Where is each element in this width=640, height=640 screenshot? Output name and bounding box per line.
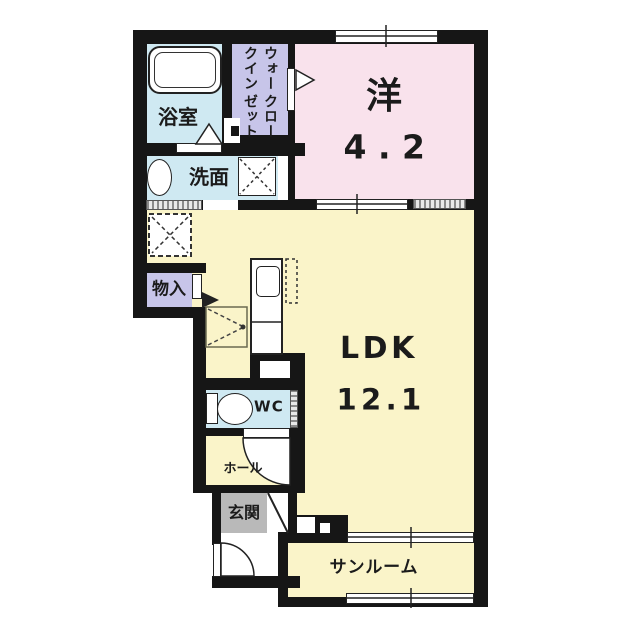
door-leaf-closet <box>287 68 295 111</box>
door-leaf-storage <box>192 274 202 299</box>
room-western <box>295 44 474 200</box>
walk-in-closet-label-line1: ウォークイン <box>240 46 280 94</box>
wall-left-column <box>193 307 206 493</box>
walk-in-closet-label-line2: クローゼット <box>240 94 280 142</box>
western-room-label: 洋 <box>366 79 402 115</box>
door-leaf-hall <box>243 428 290 438</box>
western-room-size: 4.2 <box>343 131 436 164</box>
hatch-washroom-door <box>146 200 202 210</box>
washing-machine-space <box>238 157 276 196</box>
bathtub <box>148 46 222 94</box>
washroom-sink <box>147 159 172 196</box>
hatch-western-bottom <box>413 199 466 209</box>
wc-sliding-door <box>290 390 298 428</box>
opening-washroom-entry <box>203 200 238 210</box>
floor-plan: 浴室 ウォークイン クローゼット 洋 4.2 洗面 物入 LDK 12.1 WC… <box>0 0 640 640</box>
entrance-step-line <box>268 493 288 533</box>
window-sunroom-bottom <box>346 593 474 604</box>
opening-step-niche-2 <box>320 523 330 533</box>
walk-in-closet-label: ウォークイン クローゼット <box>233 46 287 142</box>
hall-label: ホール <box>223 463 262 476</box>
wall-closet-western <box>288 30 295 210</box>
toilet-bowl <box>217 393 253 425</box>
wc-label: WC <box>254 400 284 415</box>
bathtub-inner-line <box>154 52 216 88</box>
wall-wc-top <box>193 378 305 390</box>
window-sunroom-top <box>347 532 474 543</box>
kitchen-sink <box>256 266 280 297</box>
wall-right <box>474 30 488 607</box>
storage-label: 物入 <box>152 282 186 299</box>
front-door-arc <box>221 543 254 576</box>
opening-counter-niche <box>260 361 290 378</box>
wall-storage-top <box>133 263 206 273</box>
ldk-size: 12.1 <box>337 386 426 415</box>
wall-entrance-left <box>212 485 221 545</box>
wall-sunroom-left <box>278 532 288 607</box>
slide-door-western <box>316 199 408 210</box>
entrance-label: 玄関 <box>228 505 260 521</box>
wall-hall-entrance <box>195 485 297 493</box>
wall-left <box>133 30 147 318</box>
washroom-label: 洗面 <box>189 167 229 187</box>
door-leaf-front <box>213 543 221 577</box>
opening-step-niche-1 <box>297 517 315 533</box>
sunroom-label: サンルーム <box>330 560 419 577</box>
door-leaf-bathroom <box>176 143 222 153</box>
ldk-label: LDK <box>340 334 418 364</box>
window-western-top <box>335 30 438 43</box>
bathroom-label: 浴室 <box>158 107 198 127</box>
